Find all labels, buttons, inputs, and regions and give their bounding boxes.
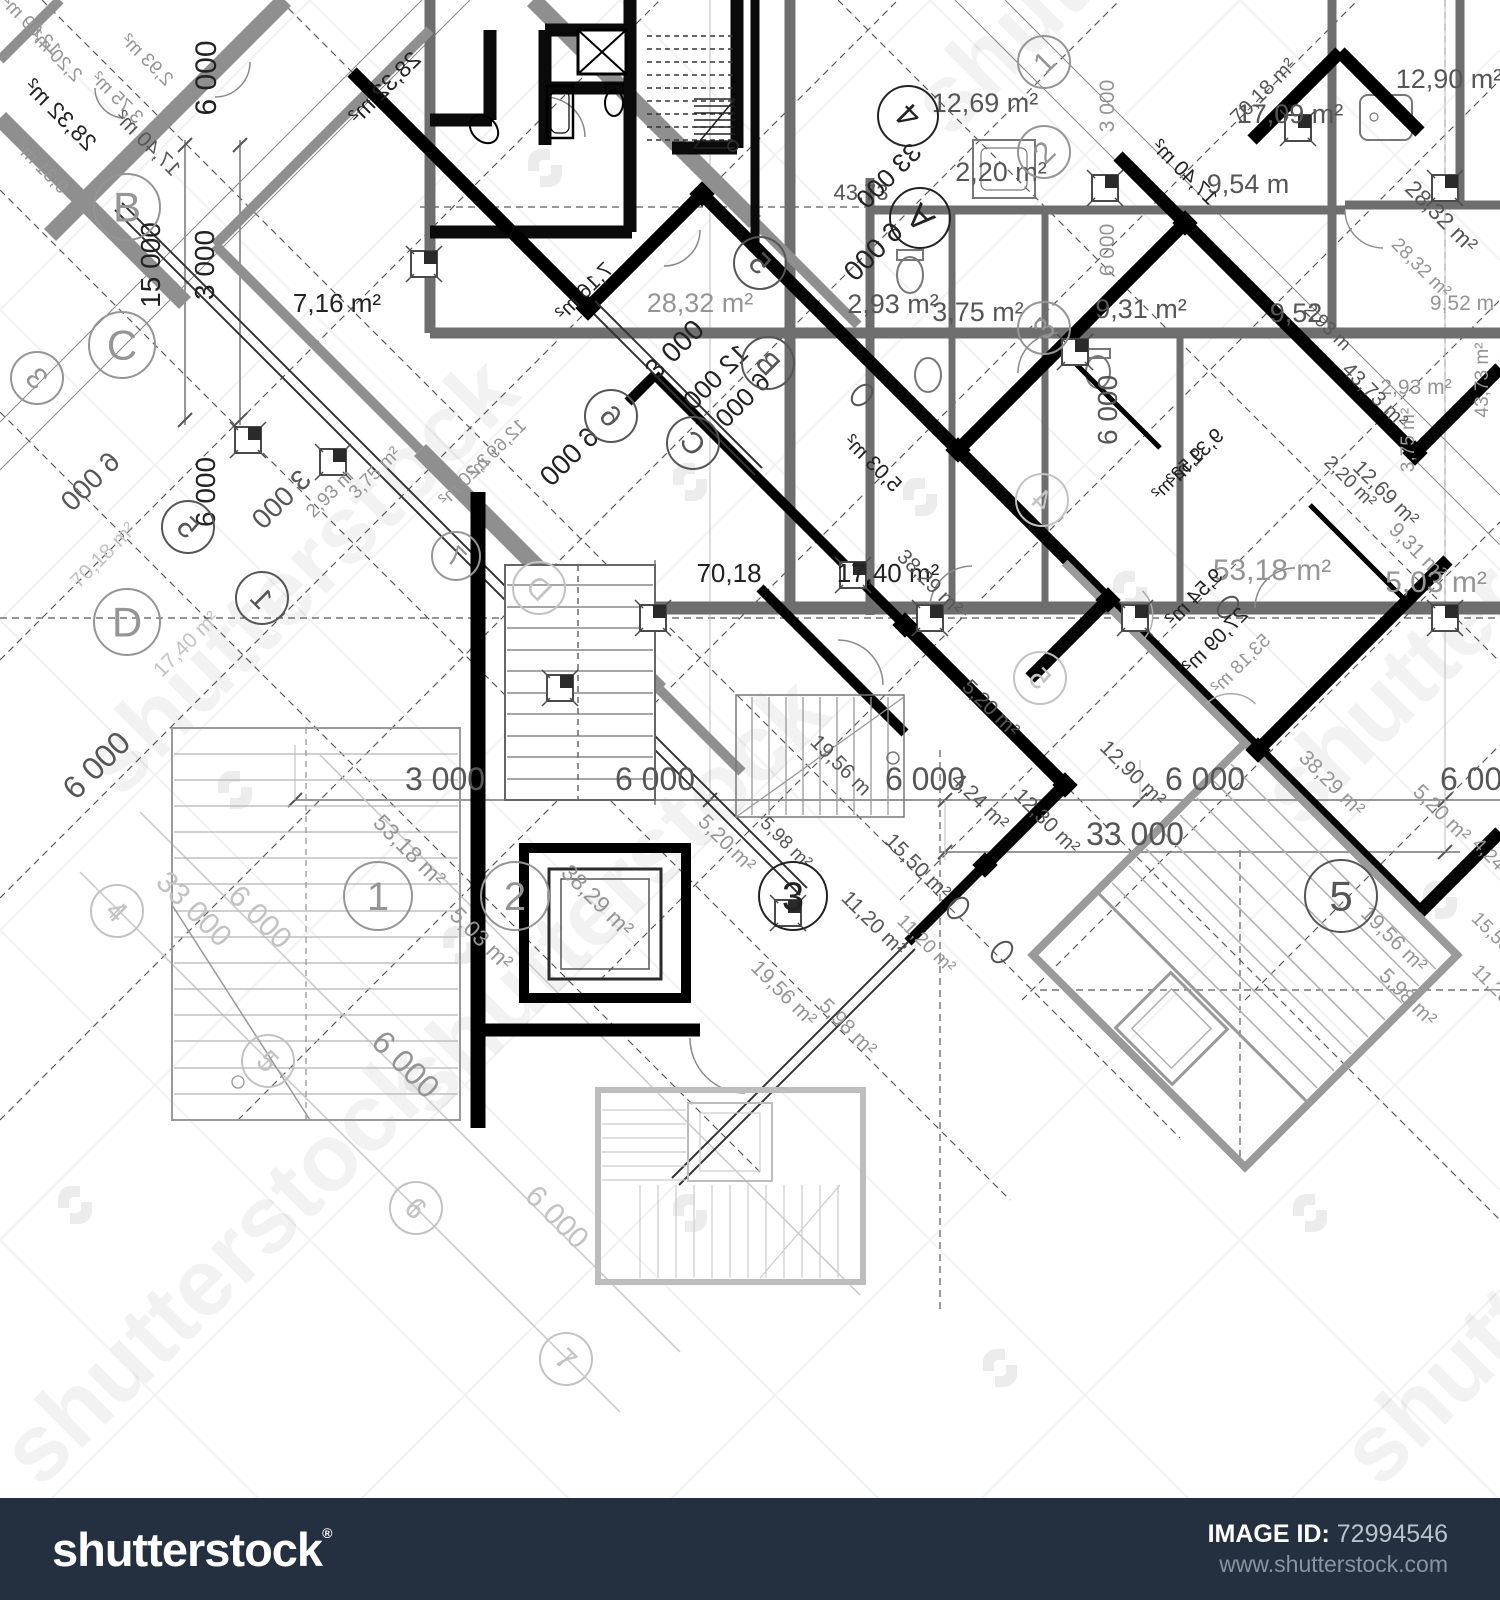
dimension-label: 11,20 m² <box>1467 961 1500 1028</box>
dimension-label: 9,31 m² <box>1095 294 1187 324</box>
image-id-value: 72994546 <box>1337 1520 1448 1548</box>
svg-text:7: 7 <box>439 540 472 573</box>
grid-marker-7: 7 <box>540 1333 592 1385</box>
grid-marker-4: 4 <box>91 885 143 937</box>
registered-mark: ® <box>322 1525 331 1541</box>
watermark-text: shutterstock <box>60 337 538 815</box>
sink-icon <box>915 358 941 392</box>
dimension-label: 19,56 m <box>806 730 876 800</box>
grid-marker-3: 3 <box>11 352 63 404</box>
svg-text:6: 6 <box>398 1191 433 1226</box>
dimension-label: 28,32 m² <box>647 288 754 318</box>
column-symbol <box>1057 334 1093 370</box>
dimension-label: 6 000 <box>222 879 298 955</box>
dimension-label: 6 000 <box>1096 224 1119 277</box>
column-symbol <box>1427 600 1463 636</box>
watermark-text: shutterstock <box>1320 1027 1500 1505</box>
dimension-label: 33 000 <box>1086 816 1184 852</box>
svg-text:5: 5 <box>1329 873 1352 920</box>
dimension-label: 70,18 m² <box>66 518 141 593</box>
dimension-label: 6 000 <box>615 761 695 797</box>
dimension-label: 6 000 <box>1165 761 1245 797</box>
svg-text:7: 7 <box>548 1342 583 1377</box>
dimension-label: 70,18 <box>696 558 761 588</box>
dimension-label: 6 000 <box>1092 375 1123 445</box>
svg-text:A: A <box>899 196 942 239</box>
dimension-label: 4,24 m² <box>946 768 1013 835</box>
dimension-label: 15 000 <box>135 222 166 308</box>
svg-text:3: 3 <box>782 875 804 919</box>
svg-text:3: 3 <box>19 361 54 396</box>
dimension-label: 7,16 m² <box>293 288 381 318</box>
dimension-label: 6 000 <box>519 1179 595 1255</box>
dimension-label: 3 000 <box>189 230 220 300</box>
footer-bar: shutterstock® IMAGE ID: 72994546 www.shu… <box>0 1498 1500 1600</box>
dimension-label: 19,56 m² <box>746 956 821 1031</box>
column-symbol <box>1087 170 1123 206</box>
svg-text:B: B <box>113 184 141 231</box>
column-symbol <box>635 600 671 636</box>
grid-marker-5: 5 <box>1305 860 1377 932</box>
svg-text:1: 1 <box>367 875 389 919</box>
dimension-label: 6 000 <box>55 446 126 517</box>
column-symbol <box>406 246 442 282</box>
blueprint-drawing: shutterstockshutterstockshutterstockshut… <box>0 0 1500 1600</box>
stock-image-page: shutterstockshutterstockshutterstockshut… <box>0 0 1500 1600</box>
dimension-label: 33 000 <box>850 137 927 214</box>
grid-marker-6: 6 <box>390 1182 442 1234</box>
dimension-label: 5,20 m² <box>957 675 1024 742</box>
grid-marker-1: 1 <box>344 862 412 930</box>
black-core-plan <box>430 0 755 250</box>
watermark-logo-glyphs <box>58 149 1457 1542</box>
dimension-label: 53,18 m² <box>1213 554 1331 587</box>
dimension-label: 28,32 m² <box>343 46 426 129</box>
stairs-icon <box>694 99 735 148</box>
dimension-label: 12,69 m² <box>932 88 1039 118</box>
grid-marker-C: C <box>89 312 155 378</box>
dimension-label: 2,93 m² <box>847 289 939 319</box>
dimension-label: 6 000 <box>1440 761 1500 797</box>
svg-text:6: 6 <box>593 399 628 434</box>
dimension-label: 2,20 m² <box>955 157 1047 187</box>
column-symbol <box>1117 600 1153 636</box>
dimension-label: 6 000 <box>534 421 605 492</box>
dimension-label: 3 000 <box>1096 80 1119 133</box>
grid-marker-C: C <box>667 417 719 469</box>
dimension-label: 2,93 m² <box>117 30 177 90</box>
site-url[interactable]: www.shutterstock.com <box>1208 1550 1448 1579</box>
dimension-label: 5,98 m² <box>814 994 881 1061</box>
image-id-label: IMAGE ID: <box>1208 1520 1330 1548</box>
svg-text:4: 4 <box>99 894 134 929</box>
grid-marker-6: 6 <box>585 390 637 442</box>
svg-text:2: 2 <box>504 875 526 919</box>
svg-text:5: 5 <box>170 510 205 545</box>
column-symbol <box>542 670 578 706</box>
svg-text:D: D <box>112 599 142 646</box>
dimension-label: 3,75 m² <box>932 297 1024 327</box>
dimension-label: 9,31 m² <box>12 138 72 198</box>
image-id-block: IMAGE ID: 72994546 www.shutterstock.com <box>1208 1519 1448 1579</box>
watermark-text: shutterstock <box>0 1027 458 1505</box>
shutterstock-logo[interactable]: shutterstock® <box>52 1522 331 1577</box>
dimension-label: 6 000 <box>190 40 223 115</box>
grid-marker-A: A <box>890 188 950 248</box>
column-symbol <box>230 422 266 458</box>
grid-marker-5: 5 <box>242 1035 294 1087</box>
dimension-label: 43,73 m² <box>1472 343 1493 418</box>
dimension-label: 12,90 m² <box>1396 64 1500 94</box>
dimension-label: 3 000 <box>405 761 485 797</box>
grid-marker-D: D <box>94 589 160 655</box>
toilet-icon <box>897 257 923 293</box>
svg-text:C: C <box>107 322 137 369</box>
